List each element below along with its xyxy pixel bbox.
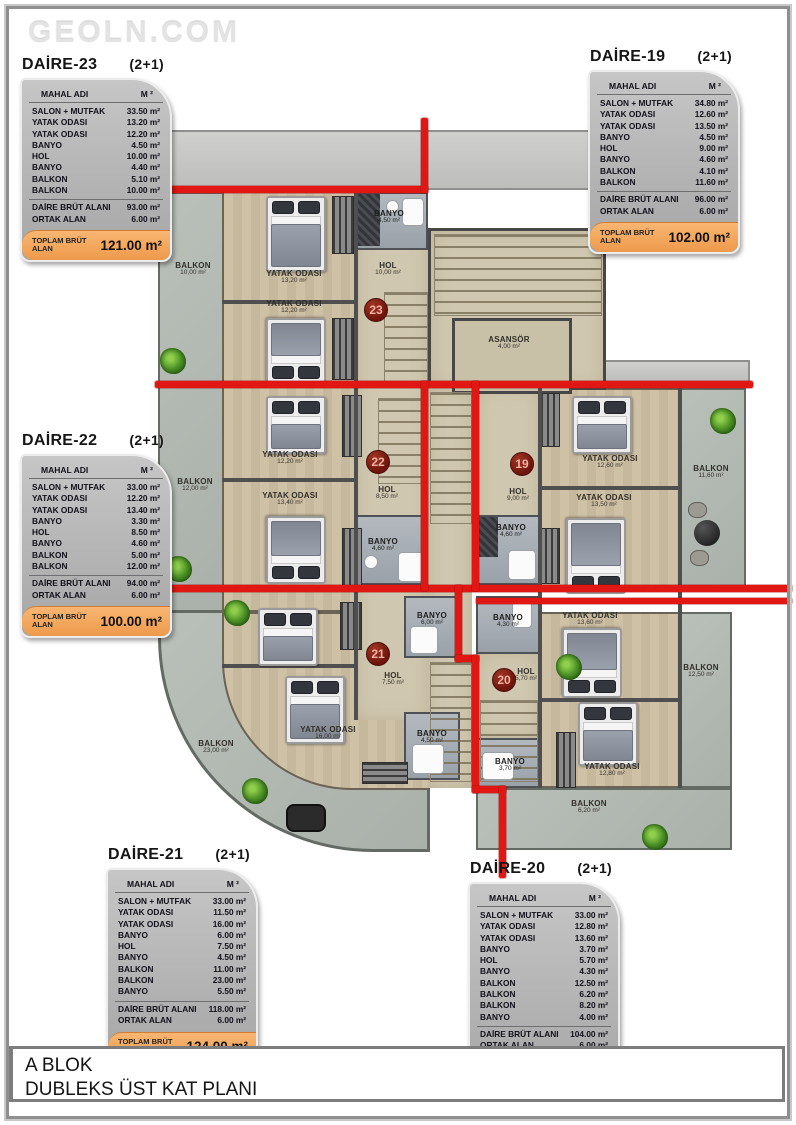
room-label-hol: HOL8,50 m² bbox=[356, 486, 418, 501]
watermark: GEOLN.COM bbox=[28, 16, 240, 50]
wardrobe bbox=[332, 196, 354, 254]
room-label-hol: HOL9,00 m² bbox=[488, 488, 548, 503]
table-row: BANYO4.50 m² bbox=[115, 952, 249, 963]
table-row: YATAK ODASI12.20 m² bbox=[29, 493, 163, 504]
wardrobe bbox=[342, 395, 362, 457]
table-row: YATAK ODASI11.50 m² bbox=[115, 907, 249, 918]
table-row: BALKON23.00 m² bbox=[115, 975, 249, 986]
room-label-yatak-odasi: YATAK ODASI12,80 m² bbox=[566, 763, 658, 778]
room-label-banyo: BANYO4,50 m² bbox=[400, 730, 464, 745]
red-divider-v2a bbox=[421, 381, 428, 591]
table-row: BANYO4.00 m² bbox=[477, 1012, 611, 1023]
table-row: BANYO4.60 m² bbox=[597, 154, 731, 165]
bed bbox=[266, 196, 326, 272]
table-row: BANYO4.60 m² bbox=[29, 538, 163, 549]
unit-type: (2+1) bbox=[577, 860, 612, 876]
table-row: SALON + MUTFAK33.00 m² bbox=[115, 896, 249, 907]
table-row: BALKON11.60 m² bbox=[597, 177, 731, 188]
plant-icon bbox=[224, 600, 250, 626]
table-row: HOL9.00 m² bbox=[597, 143, 731, 154]
wardrobe bbox=[342, 528, 362, 586]
table-row: BALKON10.00 m² bbox=[29, 185, 163, 196]
grill-icon bbox=[286, 804, 326, 832]
red-divider-h3b bbox=[476, 598, 792, 604]
table-row: BALKON5.10 m² bbox=[29, 174, 163, 185]
wall bbox=[540, 486, 680, 490]
room-label-yatak-odasi: YATAK ODASI12,60 m² bbox=[564, 455, 656, 470]
room-label-balkon: BALKON12,50 m² bbox=[666, 664, 736, 679]
unit-type: (2+1) bbox=[697, 48, 732, 64]
room-label-yatak-odasi: YATAK ODASI13,50 m² bbox=[558, 494, 650, 509]
title-block: A BLOK DUBLEKS ÜST KAT PLANI bbox=[9, 1046, 785, 1102]
red-divider-v2b bbox=[472, 381, 479, 591]
table-row: YATAK ODASI13.20 m² bbox=[29, 117, 163, 128]
bed bbox=[578, 702, 638, 766]
unit-circle-19: 19 bbox=[510, 452, 534, 476]
bed bbox=[266, 516, 326, 584]
wardrobe bbox=[332, 318, 354, 380]
table-row: BANYO4.30 m² bbox=[477, 966, 611, 977]
room-label-balkon: BALKON6,20 m² bbox=[556, 800, 622, 815]
unit-name: DAİRE-21 bbox=[108, 846, 183, 864]
unit-card-daire-22: DAİRE-22(2+1) MAHAL ADIM ² SALON + MUTFA… bbox=[20, 432, 172, 638]
wardrobe bbox=[540, 393, 560, 447]
bed bbox=[572, 396, 632, 454]
unit-circle-22: 22 bbox=[366, 450, 390, 474]
room-label-yatak-odasi: YATAK ODASI16,00 m² bbox=[282, 726, 374, 741]
room-label-banyo: BANYO4,60 m² bbox=[480, 524, 542, 539]
plant-icon bbox=[710, 408, 736, 434]
unit-type: (2+1) bbox=[215, 846, 250, 862]
table-row: SALON + MUTFAK33.50 m² bbox=[29, 106, 163, 117]
unit-circle-20: 20 bbox=[492, 668, 516, 692]
room-label-banyo: BANYO4,30 m² bbox=[476, 614, 540, 629]
stairs-d23 bbox=[384, 292, 428, 384]
table-row: BALKON12.00 m² bbox=[29, 561, 163, 572]
room-label-hol: HOL7,50 m² bbox=[362, 672, 424, 687]
unit-card-daire-21: DAİRE-21(2+1) MAHAL ADIM ² SALON + MUTFA… bbox=[106, 846, 258, 1064]
block-name: A BLOK bbox=[25, 1054, 782, 1078]
room-label-yatak-odasi: YATAK ODASI13,40 m² bbox=[244, 492, 336, 507]
stairs-common bbox=[434, 234, 602, 316]
balcony-right-d20 bbox=[678, 612, 732, 788]
unit-name: DAİRE-19 bbox=[590, 48, 665, 66]
room-label-yatak-odasi: YATAK ODASI12,20 m² bbox=[248, 300, 340, 315]
table-row: BALKON6.20 m² bbox=[477, 989, 611, 1000]
bed bbox=[266, 396, 326, 454]
unit-name: DAİRE-23 bbox=[22, 56, 97, 74]
room-label-banyo: BANYO4,60 m² bbox=[348, 538, 418, 553]
table-row: BALKON4.10 m² bbox=[597, 166, 731, 177]
unit-card-daire-23: DAİRE-23(2+1) MAHAL ADIM ² SALON + MUTFA… bbox=[20, 56, 172, 262]
room-label-asansor: ASANSÖR4,00 m² bbox=[466, 336, 552, 351]
plan-name: DUBLEKS ÜST KAT PLANI bbox=[25, 1078, 782, 1102]
unit-type: (2+1) bbox=[129, 56, 164, 72]
red-divider-h2 bbox=[155, 381, 753, 388]
shower-icon bbox=[508, 550, 536, 580]
table-row: SALON + MUTFAK34.80 m² bbox=[597, 98, 731, 109]
stairs-d19 bbox=[430, 392, 472, 524]
table-row: BANYO3.70 m² bbox=[477, 944, 611, 955]
room-label-hol: HOL10,00 m² bbox=[356, 262, 420, 277]
roof-strip bbox=[158, 130, 606, 190]
wardrobe bbox=[340, 602, 362, 650]
table-row: BANYO4.50 m² bbox=[597, 132, 731, 143]
table-row: BALKON8.20 m² bbox=[477, 1000, 611, 1011]
table-row: YATAK ODASI12.20 m² bbox=[29, 129, 163, 140]
table-row: YATAK ODASI12.80 m² bbox=[477, 921, 611, 932]
wardrobe bbox=[362, 762, 408, 784]
table-row: BALKON5.00 m² bbox=[29, 550, 163, 561]
table-row: HOL5.70 m² bbox=[477, 955, 611, 966]
wall bbox=[222, 478, 356, 482]
room-label-yatak-odasi: YATAK ODASI13,60 m² bbox=[544, 612, 636, 627]
table-row: YATAK ODASI13.40 m² bbox=[29, 505, 163, 516]
bed bbox=[258, 608, 318, 666]
table-icon bbox=[694, 520, 720, 546]
red-divider-v1 bbox=[421, 118, 428, 193]
unit-type: (2+1) bbox=[129, 432, 164, 448]
table-row: YATAK ODASI13.60 m² bbox=[477, 933, 611, 944]
table-row: BALKON12.50 m² bbox=[477, 978, 611, 989]
table-row: BANYO4.50 m² bbox=[29, 140, 163, 151]
table-row: BANYO5.50 m² bbox=[115, 986, 249, 997]
table-row: BANYO4.40 m² bbox=[29, 162, 163, 173]
unit-circle-23: 23 bbox=[364, 298, 388, 322]
table-row: YATAK ODASI16.00 m² bbox=[115, 919, 249, 930]
plant-icon bbox=[242, 778, 268, 804]
balcony-bottom-d20 bbox=[476, 788, 732, 850]
table-row: HOL7.50 m² bbox=[115, 941, 249, 952]
unit-name: DAİRE-20 bbox=[470, 860, 545, 878]
table-row: SALON + MUTFAK33.00 m² bbox=[29, 482, 163, 493]
room-label-balkon: BALKON11,60 m² bbox=[676, 465, 746, 480]
plant-icon bbox=[556, 654, 582, 680]
table-row: YATAK ODASI12.60 m² bbox=[597, 109, 731, 120]
red-divider-h1 bbox=[155, 186, 428, 193]
tub-icon bbox=[412, 744, 444, 774]
bed bbox=[266, 318, 326, 384]
room-label-banyo: BANYO6,00 m² bbox=[400, 612, 464, 627]
sink-icon bbox=[364, 555, 378, 569]
table-row: SALON + MUTFAK33.00 m² bbox=[477, 910, 611, 921]
room-label-balkon: BALKON12,00 m² bbox=[165, 478, 225, 493]
chair-icon bbox=[690, 550, 709, 566]
unit-circle-21: 21 bbox=[366, 642, 390, 666]
wardrobe bbox=[556, 732, 576, 788]
floor-plan-page: GEOLN.COM bbox=[0, 0, 796, 1125]
table-row: BALKON11.00 m² bbox=[115, 964, 249, 975]
room-label-balkon: BALKON10,00 m² bbox=[163, 262, 223, 277]
room-label-yatak-odasi: YATAK ODASI13,20 m² bbox=[248, 270, 340, 285]
unit-card-daire-19: DAİRE-19(2+1) MAHAL ADIM ² SALON + MUTFA… bbox=[588, 48, 740, 254]
chair-icon bbox=[688, 502, 707, 518]
bed bbox=[566, 518, 626, 594]
room-label-banyo: BANYO3,70 m² bbox=[478, 758, 542, 773]
table-row: BANYO3.30 m² bbox=[29, 516, 163, 527]
unit-name: DAİRE-22 bbox=[22, 432, 97, 450]
table-row: YATAK ODASI13.50 m² bbox=[597, 121, 731, 132]
shower-icon bbox=[410, 626, 438, 654]
room-label-yatak-odasi: YATAK ODASI12,20 m² bbox=[244, 451, 336, 466]
plant-icon bbox=[160, 348, 186, 374]
room-label-balkon: BALKON23,00 m² bbox=[178, 740, 254, 755]
plant-icon bbox=[642, 824, 668, 850]
table-row: BANYO6.00 m² bbox=[115, 930, 249, 941]
room-label-banyo: BANYO4,50 m² bbox=[352, 210, 426, 225]
table-row: HOL8.50 m² bbox=[29, 527, 163, 538]
table-row: HOL10.00 m² bbox=[29, 151, 163, 162]
